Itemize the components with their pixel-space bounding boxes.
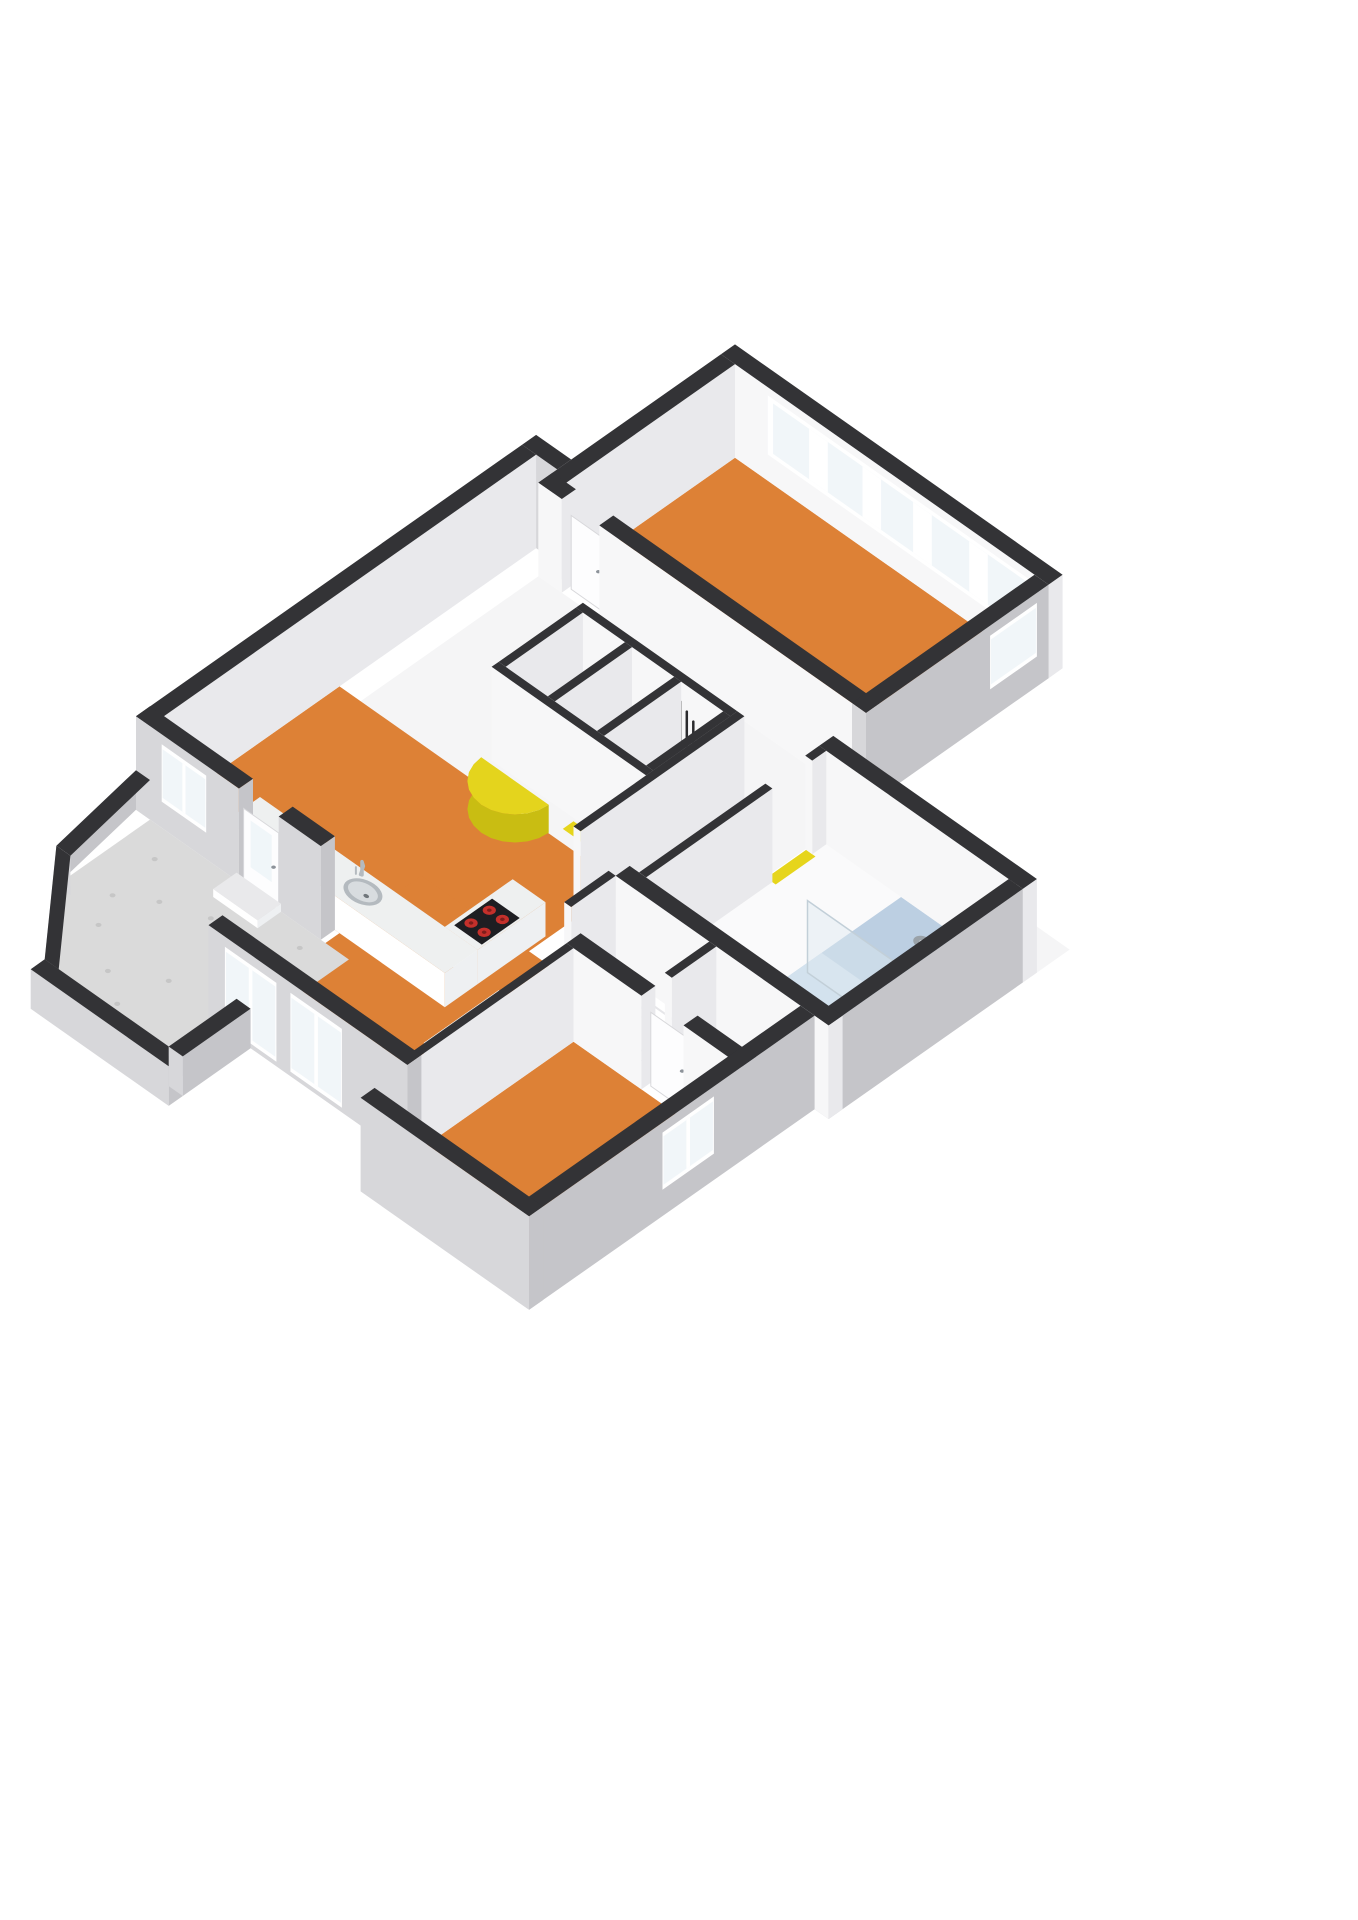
wall-bathroom-west-a — [805, 746, 826, 854]
floorplan-3d-view — [0, 0, 1358, 1920]
kitchen-faucet — [361, 862, 364, 875]
wall-master-southwest-a — [538, 473, 576, 593]
floorplan-svg — [0, 0, 1358, 1920]
